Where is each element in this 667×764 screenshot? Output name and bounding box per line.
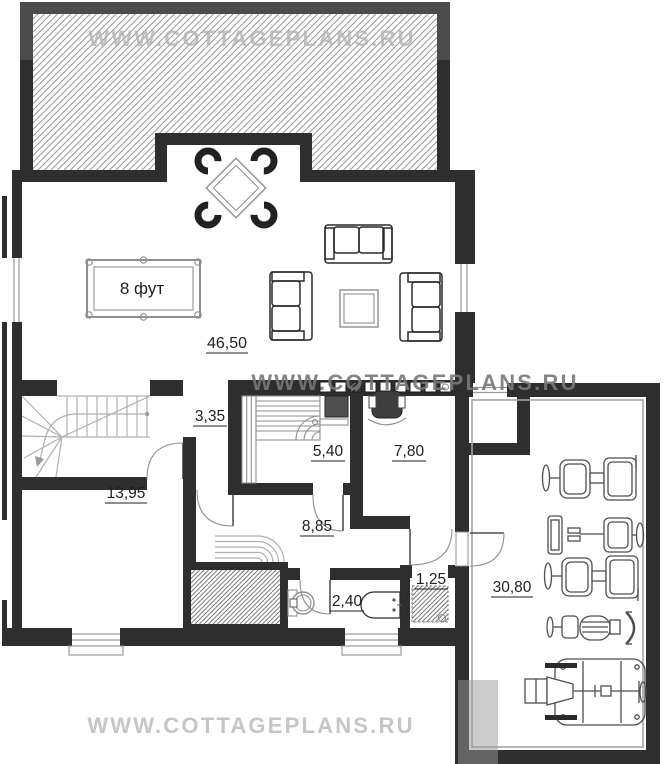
- office-chair: [368, 391, 406, 425]
- left-wall-upper: [12, 170, 22, 258]
- dining-chair: [198, 205, 218, 225]
- window-right: [453, 264, 477, 312]
- living-top-wall-left: [12, 170, 155, 182]
- stair-direction-arrow: [35, 412, 149, 467]
- wc-top-wall-right: [448, 565, 455, 578]
- door-study: [410, 529, 452, 565]
- band-seg-1: [12, 380, 57, 396]
- dining-chair: [254, 205, 274, 225]
- area-label-hall: 3,35: [195, 408, 225, 425]
- floor-plan: 8 фут: [0, 0, 667, 764]
- gym-machine-3: [545, 556, 639, 601]
- gym-machine-2: [548, 516, 644, 554]
- bottom-wall-3: [398, 628, 460, 646]
- left-wall-lower: [12, 322, 22, 628]
- sauna-bench-vertical: [242, 396, 256, 483]
- terrace-wall-left-upper: [20, 2, 33, 60]
- outer-line-1: [2, 196, 7, 258]
- bottom-wall-1: [2, 628, 72, 646]
- arrowhead: [35, 456, 44, 467]
- area-label-corridor: 8,85: [302, 518, 332, 535]
- window-left: [10, 258, 24, 322]
- washbasin: [288, 590, 314, 616]
- curved-steps: [215, 536, 284, 562]
- bath-top-wall-left: [288, 568, 300, 580]
- area-label-living: 46,50: [207, 335, 247, 352]
- bottom-wall-2: [120, 628, 345, 646]
- sauna-study-wall: [350, 392, 363, 529]
- wc-top-wall-left: [400, 565, 412, 578]
- terrace-wall-left: [20, 60, 33, 182]
- terrace-wall-right-upper: [437, 2, 450, 60]
- area-label-bathroom: 2,40: [332, 593, 363, 610]
- wc: [412, 586, 448, 622]
- outer-line-3: [2, 600, 7, 628]
- sauna-bench-top: [256, 396, 320, 440]
- sofa-left: [270, 272, 312, 340]
- bath-top-wall-right: [330, 568, 400, 580]
- door-gym: [456, 532, 504, 566]
- gym-equipment: [525, 455, 646, 725]
- outer-line-2: [2, 322, 7, 520]
- billiard-table: 8 фут: [86, 257, 201, 320]
- band-seg-2: [150, 380, 183, 396]
- shower-tray: [412, 586, 448, 622]
- shaft-hatch: [191, 570, 280, 624]
- terrace-wall-top: [20, 2, 450, 14]
- gym-machine-1: [543, 455, 637, 500]
- sauna-wall-left: [228, 392, 242, 495]
- alcove-wall-right: [300, 133, 312, 182]
- gym-gray-patch: [458, 680, 498, 764]
- coffee-table: [340, 290, 378, 327]
- area-label-room-left: 13,95: [107, 485, 146, 502]
- bathtub: [361, 592, 402, 618]
- gym-bench-press: [525, 659, 646, 725]
- gym-wall-right: [646, 383, 660, 764]
- gym-wall-left-upper: [455, 397, 469, 532]
- area-label-gym: 30,80: [493, 579, 532, 596]
- sofa-group: [270, 225, 442, 341]
- window-bottom-2: [342, 628, 401, 655]
- door-room-left: [147, 443, 183, 479]
- door-hall-corridor: [197, 490, 233, 526]
- floor-plan-drawing: 8 фут: [0, 0, 667, 764]
- area-label-sauna: 5,40: [313, 443, 344, 460]
- sauna-wall-bottom-left: [228, 483, 313, 495]
- gym-exercise-bike: [547, 612, 634, 644]
- staircase: [22, 396, 150, 477]
- sofa-top: [325, 225, 392, 263]
- sauna: [242, 396, 348, 483]
- area-label-wc: 1,25: [416, 571, 446, 588]
- terrace-wall-right: [437, 60, 450, 182]
- watermark-top: WWW.COTTAGEPLANS.RU: [88, 26, 415, 51]
- window-bottom-1: [69, 628, 123, 655]
- area-label-study: 7,80: [394, 443, 425, 460]
- billiard-size-label: 8 фут: [120, 279, 164, 298]
- watermark-bottom: WWW.COTTAGEPLANS.RU: [87, 713, 414, 738]
- study-bottom-wall: [350, 516, 410, 529]
- gym-jut-horizontal: [455, 443, 530, 455]
- sofa-right: [400, 273, 442, 341]
- right-wall-upper: [455, 170, 475, 264]
- alcove-wall-top: [155, 133, 312, 145]
- living-top-wall-right: [312, 170, 475, 182]
- watermark-middle: WWW.COTTAGEPLANS.RU: [251, 370, 578, 395]
- gym-jut-vertical: [517, 397, 530, 443]
